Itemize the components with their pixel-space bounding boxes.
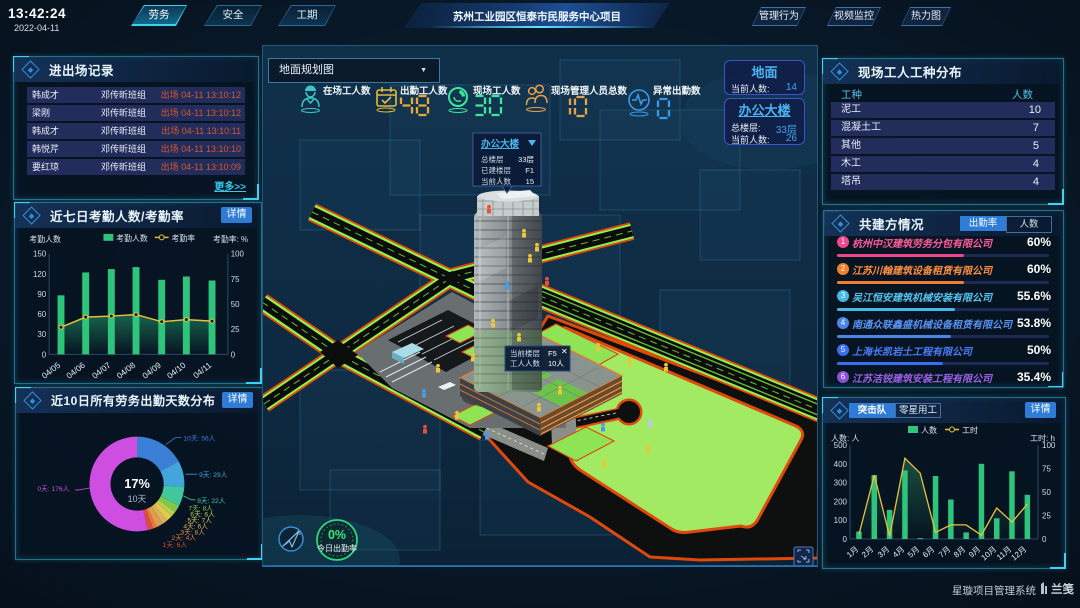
svg-text:异常出勤数: 异常出勤数: [653, 85, 701, 97]
svg-text:5月: 5月: [906, 545, 921, 560]
svg-text:现场管理人员总数: 现场管理人员总数: [551, 85, 628, 97]
svg-text:10天: 56人: 10天: 56人: [183, 435, 215, 443]
svg-text:人数: 人数: [921, 425, 937, 435]
svg-text:1月: 1月: [845, 545, 860, 560]
svg-text:10人: 10人: [548, 359, 564, 368]
svg-text:500: 500: [834, 441, 848, 450]
svg-text:04/08: 04/08: [115, 360, 138, 381]
svg-text:工人人数: 工人人数: [510, 358, 540, 368]
svg-text:100: 100: [834, 516, 848, 525]
svg-text:50: 50: [1042, 488, 1051, 497]
svg-text:今日出勤率: 今日出勤率: [317, 543, 357, 553]
svg-text:当前楼层: 当前楼层: [510, 348, 540, 358]
svg-text:25: 25: [1042, 512, 1051, 521]
svg-text:6月: 6月: [921, 545, 936, 560]
svg-text:考勤率: %: 考勤率: %: [213, 234, 248, 244]
svg-text:120: 120: [33, 270, 47, 279]
svg-text:33层: 33层: [518, 155, 534, 164]
svg-text:4月: 4月: [891, 545, 906, 560]
svg-text:11月: 11月: [995, 545, 1013, 562]
svg-text:75: 75: [231, 275, 240, 284]
svg-text:400: 400: [834, 460, 848, 469]
svg-text:F5: F5: [548, 349, 557, 358]
svg-text:总楼层: 总楼层: [481, 154, 504, 164]
svg-text:10天: 10天: [128, 494, 147, 504]
svg-text:12月: 12月: [1010, 545, 1029, 563]
svg-text:办公大楼: 办公大楼: [481, 138, 520, 150]
svg-text:2月: 2月: [860, 545, 875, 560]
svg-text:0: 0: [231, 350, 236, 359]
svg-text:在场工人数: 在场工人数: [323, 85, 371, 97]
svg-text:0天: 176人: 0天: 176人: [37, 485, 69, 493]
svg-text:04/07: 04/07: [90, 360, 113, 381]
svg-text:04/09: 04/09: [140, 360, 163, 381]
svg-text:✕: ✕: [561, 347, 568, 356]
svg-text:0%: 0%: [328, 528, 346, 542]
svg-text:300: 300: [834, 479, 848, 488]
svg-text:考勤率: 考勤率: [172, 233, 196, 243]
svg-text:考勤人数: 考勤人数: [116, 233, 148, 243]
svg-text:50: 50: [231, 300, 240, 309]
svg-text:8天: 22人: 8天: 22人: [197, 497, 226, 505]
svg-text:9天: 29人: 9天: 29人: [199, 471, 228, 479]
svg-text:当前人数: 当前人数: [481, 176, 511, 186]
svg-text:30: 30: [37, 330, 46, 339]
svg-text:60: 60: [37, 310, 46, 319]
svg-text:7月: 7月: [937, 545, 952, 560]
svg-text:25: 25: [231, 325, 240, 334]
svg-text:工时: 工时: [962, 425, 978, 435]
svg-text:100: 100: [1042, 441, 1056, 450]
svg-text:15: 15: [526, 177, 534, 186]
svg-text:1天: 6人: 1天: 6人: [163, 541, 188, 549]
svg-text:N: N: [297, 531, 301, 537]
svg-text:0: 0: [1042, 535, 1047, 544]
svg-text:0: 0: [42, 350, 47, 359]
svg-text:04/10: 04/10: [165, 360, 188, 381]
svg-text:90: 90: [37, 290, 46, 299]
svg-text:100: 100: [231, 250, 245, 259]
svg-text:04/11: 04/11: [191, 360, 213, 381]
svg-text:已建楼层: 已建楼层: [481, 165, 511, 175]
svg-text:17%: 17%: [124, 476, 150, 491]
svg-text:0: 0: [843, 535, 848, 544]
svg-text:2天: 4人: 2天: 4人: [172, 534, 197, 542]
svg-text:04/06: 04/06: [64, 360, 87, 381]
svg-text:3月: 3月: [876, 545, 891, 560]
svg-text:考勤人数: 考勤人数: [29, 234, 61, 244]
svg-text:8月: 8月: [952, 545, 967, 560]
svg-text:150: 150: [33, 250, 47, 259]
svg-text:200: 200: [834, 497, 848, 506]
svg-text:75: 75: [1042, 465, 1051, 474]
svg-text:04/05: 04/05: [40, 360, 63, 381]
svg-text:F1: F1: [525, 166, 534, 175]
